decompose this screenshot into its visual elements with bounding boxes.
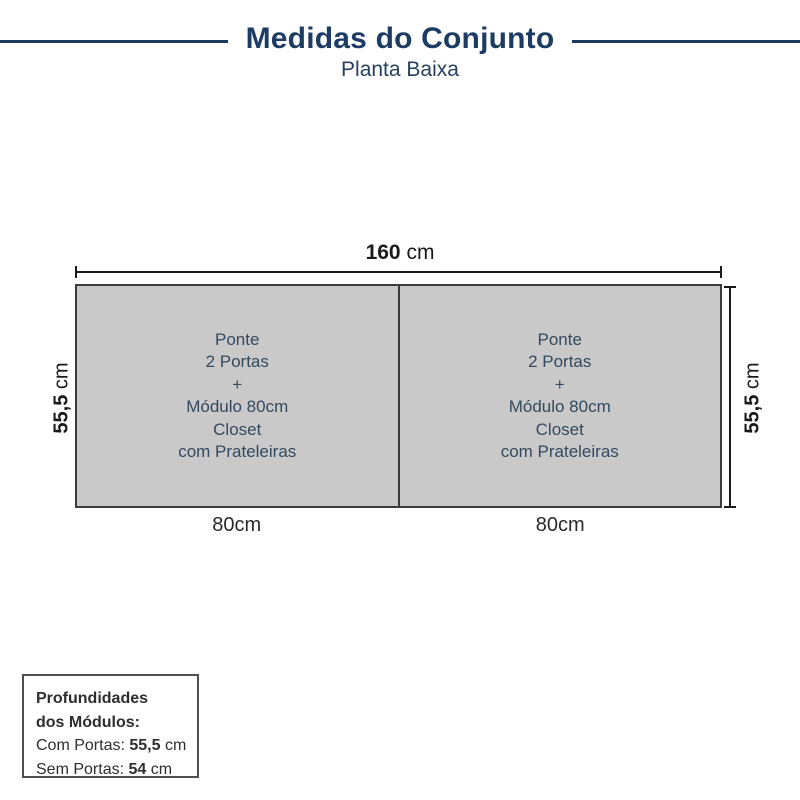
row-label: Sem Portas: [36, 761, 128, 778]
page-subtitle: Planta Baixa [0, 58, 800, 82]
info-box-row-com-portas: Com Portas: 55,5 cm [36, 734, 197, 758]
total-width-unit: cm [401, 241, 435, 264]
module-right-width-label: 80cm [399, 514, 723, 537]
row-label: Com Portas: [36, 737, 129, 754]
module-text-line: Ponte [178, 329, 296, 352]
info-box-heading-line1: Profundidades [36, 687, 197, 711]
depth-label-left: 55,5 cm [51, 362, 74, 433]
depth-right-value: 55,5 [742, 395, 764, 434]
info-box-row-sem-portas: Sem Portas: 54 cm [36, 758, 197, 782]
module-text-line: Closet [178, 419, 296, 442]
dimension-line-top [75, 271, 722, 273]
depth-right-unit: cm [742, 362, 764, 394]
module-text-line: 2 Portas [178, 351, 296, 374]
module-left-width-label: 80cm [75, 514, 399, 537]
title-rule-right [572, 40, 800, 43]
module-right-text: Ponte 2 Portas + Módulo 80cm Closet com … [501, 329, 619, 464]
module-text-line: com Prateleiras [501, 441, 619, 464]
depth-left-value: 55,5 [51, 395, 73, 434]
module-left: Ponte 2 Portas + Módulo 80cm Closet com … [77, 286, 400, 506]
row-value: 54 [128, 761, 146, 778]
info-box-heading-line2: dos Módulos: [36, 711, 197, 735]
row-unit: cm [161, 737, 187, 754]
module-text-line: + [178, 374, 296, 397]
depth-left-unit: cm [51, 362, 73, 394]
module-text-line: Módulo 80cm [501, 396, 619, 419]
depth-label-right: 55,5 cm [742, 362, 765, 433]
total-width-value: 160 [366, 241, 401, 264]
module-right: Ponte 2 Portas + Módulo 80cm Closet com … [400, 286, 721, 506]
module-left-text: Ponte 2 Portas + Módulo 80cm Closet com … [178, 329, 296, 464]
floor-plan-page: Medidas do Conjunto Planta Baixa 160 cm … [0, 0, 800, 800]
cabinet-plan: Ponte 2 Portas + Módulo 80cm Closet com … [75, 284, 722, 508]
module-text-line: + [501, 374, 619, 397]
row-value: 55,5 [129, 737, 160, 754]
module-text-line: com Prateleiras [178, 441, 296, 464]
module-text-line: Ponte [501, 329, 619, 352]
dimension-line-right [729, 286, 731, 508]
module-text-line: Closet [501, 419, 619, 442]
total-width-label: 160 cm [0, 241, 800, 265]
module-width-labels: 80cm 80cm [75, 514, 722, 537]
page-title: Medidas do Conjunto [0, 22, 800, 56]
depths-info-box: Profundidades dos Módulos: Com Portas: 5… [22, 674, 199, 778]
row-unit: cm [146, 761, 172, 778]
module-text-line: 2 Portas [501, 351, 619, 374]
module-text-line: Módulo 80cm [178, 396, 296, 419]
